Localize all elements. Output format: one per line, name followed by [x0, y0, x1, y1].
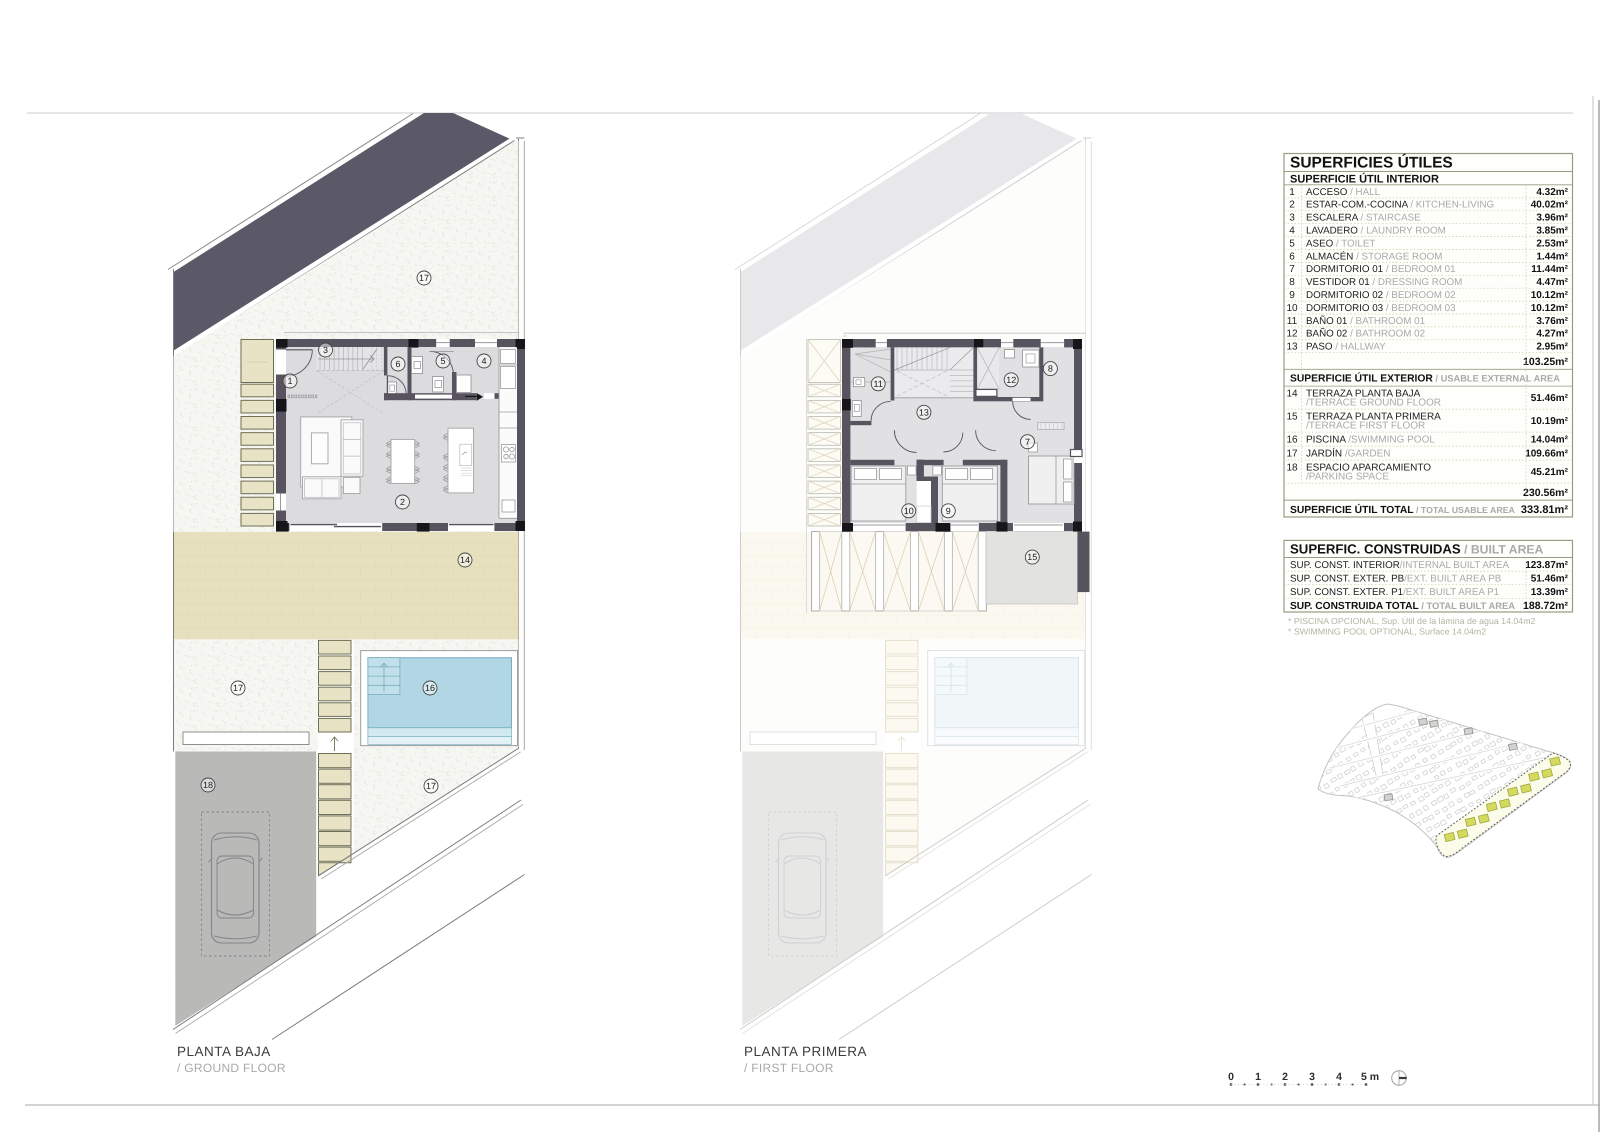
svg-text:5 m: 5 m [1361, 1071, 1379, 1083]
svg-text:2: 2 [400, 497, 405, 507]
svg-text:17: 17 [419, 273, 429, 283]
svg-text:1.44m²: 1.44m² [1536, 251, 1568, 262]
svg-text:51.46m²: 51.46m² [1531, 574, 1569, 585]
svg-text:17: 17 [233, 683, 243, 693]
svg-text:14: 14 [1286, 388, 1298, 399]
svg-text:15: 15 [1027, 552, 1037, 562]
svg-text:/TERRACE FIRST FLOOR: /TERRACE FIRST FLOOR [1306, 421, 1425, 432]
svg-text:ESTAR-COM.-COCINA / KITCHEN-LI: ESTAR-COM.-COCINA / KITCHEN-LIVING [1306, 200, 1494, 211]
svg-text:/ FIRST FLOOR: / FIRST FLOOR [744, 1061, 834, 1075]
svg-text:PLANTA BAJA: PLANTA BAJA [177, 1044, 271, 1059]
svg-text:11: 11 [1287, 316, 1298, 327]
svg-text:3.85m²: 3.85m² [1536, 226, 1568, 237]
svg-text:4: 4 [481, 356, 486, 366]
svg-text:SUP. CONSTRUIDA TOTAL / TOTAL: SUP. CONSTRUIDA TOTAL / TOTAL BUILT AREA [1290, 600, 1515, 612]
svg-text:14.04m²: 14.04m² [1531, 435, 1569, 446]
svg-text:10.12m²: 10.12m² [1531, 290, 1569, 301]
svg-text:ASEO / TOILET: ASEO / TOILET [1306, 238, 1375, 249]
svg-text:17: 17 [426, 781, 436, 791]
svg-text:BAÑO 02 / BATHROOM 02: BAÑO 02 / BATHROOM 02 [1306, 328, 1425, 340]
svg-text:ALMACÉN / STORAGE ROOM: ALMACÉN / STORAGE ROOM [1306, 250, 1442, 262]
svg-text:10: 10 [1286, 303, 1298, 314]
svg-text:109.66m²: 109.66m² [1525, 449, 1568, 460]
svg-text:18: 18 [203, 780, 213, 790]
svg-text:JARDÍN /GARDEN: JARDÍN /GARDEN [1306, 447, 1390, 459]
svg-text:* PISCINA OPCIONAL, Sup. Útil: * PISCINA OPCIONAL, Sup. Útil de la lámi… [1288, 616, 1536, 626]
svg-text:SUPERFICIE ÚTIL TOTAL / TOTAL: SUPERFICIE ÚTIL TOTAL / TOTAL USABLE ARE… [1290, 503, 1516, 516]
svg-text:LAVADERO / LAUNDRY ROOM: LAVADERO / LAUNDRY ROOM [1306, 226, 1446, 237]
svg-text:45.21m²: 45.21m² [1531, 467, 1569, 478]
svg-text:5: 5 [1289, 238, 1295, 249]
svg-text:SUPERFICIES ÚTILES: SUPERFICIES ÚTILES [1290, 154, 1453, 172]
svg-text:6: 6 [395, 359, 400, 369]
svg-text:2.95m²: 2.95m² [1536, 342, 1568, 353]
svg-text:13.39m²: 13.39m² [1531, 587, 1569, 598]
svg-text:11.44m²: 11.44m² [1531, 264, 1568, 275]
svg-text:333.81m²: 333.81m² [1521, 504, 1568, 516]
svg-text:7: 7 [1289, 264, 1295, 275]
svg-text:7: 7 [1025, 437, 1030, 447]
svg-text:DORMITORIO 01 / BEDROOM 01: DORMITORIO 01 / BEDROOM 01 [1306, 264, 1456, 275]
svg-text:10.19m²: 10.19m² [1531, 416, 1569, 427]
svg-text:PLANTA PRIMERA: PLANTA PRIMERA [744, 1044, 867, 1059]
svg-text:ACCESO / HALL: ACCESO / HALL [1306, 187, 1381, 198]
svg-text:3: 3 [1289, 213, 1295, 224]
svg-text:13: 13 [919, 407, 929, 417]
svg-text:SUPERFICIE ÚTIL EXTERIOR / USA: SUPERFICIE ÚTIL EXTERIOR / USABLE EXTERN… [1290, 372, 1560, 385]
svg-text:11: 11 [874, 379, 883, 389]
svg-text:5: 5 [440, 356, 445, 366]
svg-text:4.47m²: 4.47m² [1536, 277, 1568, 288]
svg-text:* SWIMMING POOL OPTIONAL, Surf: * SWIMMING POOL OPTIONAL, Surface 14.04m… [1288, 627, 1486, 637]
svg-text:DORMITORIO 02 / BEDROOM 02: DORMITORIO 02 / BEDROOM 02 [1306, 290, 1456, 301]
svg-text:3.96m²: 3.96m² [1536, 213, 1568, 224]
svg-text:SUPERFIC. CONSTRUIDAS / BUILT: SUPERFIC. CONSTRUIDAS / BUILT AREA [1290, 542, 1544, 557]
svg-text:8: 8 [1289, 277, 1295, 288]
svg-text:12: 12 [1286, 329, 1298, 340]
svg-text:103.25m²: 103.25m² [1523, 356, 1568, 368]
svg-text:1: 1 [287, 376, 292, 386]
svg-text:13: 13 [1286, 342, 1298, 353]
svg-text:SUP. CONST. EXTER. P1/EXT. BUI: SUP. CONST. EXTER. P1/EXT. BUILT AREA P1 [1290, 587, 1499, 598]
svg-text:/PARKING SPACE: /PARKING SPACE [1306, 472, 1389, 483]
svg-text:DORMITORIO 03 / BEDROOM 03: DORMITORIO 03 / BEDROOM 03 [1306, 303, 1456, 314]
svg-text:10.12m²: 10.12m² [1531, 303, 1569, 314]
svg-text:PISCINA /SWIMMING POOL: PISCINA /SWIMMING POOL [1306, 434, 1435, 445]
svg-text:4.27m²: 4.27m² [1536, 329, 1568, 340]
svg-text:PASO / HALLWAY: PASO / HALLWAY [1306, 342, 1386, 353]
svg-text:/ GROUND FLOOR: / GROUND FLOOR [177, 1061, 286, 1075]
svg-text:188.72m²: 188.72m² [1523, 600, 1568, 612]
svg-text:4.32m²: 4.32m² [1536, 187, 1568, 198]
svg-text:17: 17 [1286, 448, 1298, 459]
svg-text:9: 9 [946, 506, 951, 516]
svg-text:4: 4 [1336, 1071, 1342, 1083]
svg-text:SUP. CONST. INTERIOR/INTERNAL: SUP. CONST. INTERIOR/INTERNAL BUILT AREA [1290, 560, 1509, 571]
svg-text:10: 10 [904, 506, 914, 516]
svg-text:SUP. CONST. EXTER. PB/EXT. BUI: SUP. CONST. EXTER. PB/EXT. BUILT AREA PB [1290, 574, 1502, 585]
svg-text:BAÑO 01 / BATHROOM 01: BAÑO 01 / BATHROOM 01 [1306, 315, 1425, 327]
svg-text:/TERRACE GROUND FLOOR: /TERRACE GROUND FLOOR [1306, 398, 1441, 409]
svg-text:3.76m²: 3.76m² [1536, 316, 1568, 327]
svg-text:6: 6 [1289, 251, 1295, 262]
svg-text:VESTIDOR 01 / DRESSING ROOM: VESTIDOR 01 / DRESSING ROOM [1306, 277, 1462, 288]
svg-text:ESCALERA / STAIRCASE: ESCALERA / STAIRCASE [1306, 213, 1421, 224]
svg-text:1: 1 [1255, 1071, 1261, 1083]
svg-text:3: 3 [1309, 1071, 1315, 1083]
svg-text:12: 12 [1006, 375, 1016, 385]
svg-text:14: 14 [460, 555, 470, 565]
svg-text:230.56m²: 230.56m² [1523, 487, 1568, 499]
svg-text:SUPERFICIE ÚTIL INTERIOR: SUPERFICIE ÚTIL INTERIOR [1290, 172, 1439, 185]
svg-text:2: 2 [1282, 1071, 1288, 1083]
svg-text:40.02m²: 40.02m² [1531, 200, 1569, 211]
svg-text:8: 8 [1048, 364, 1053, 374]
svg-text:18: 18 [1286, 462, 1298, 473]
svg-text:4: 4 [1289, 226, 1295, 237]
svg-text:2: 2 [1289, 200, 1295, 211]
svg-text:3: 3 [323, 345, 328, 355]
svg-text:15: 15 [1286, 411, 1298, 422]
svg-text:1: 1 [1289, 187, 1295, 198]
svg-text:51.46m²: 51.46m² [1531, 393, 1569, 404]
svg-text:16: 16 [1286, 434, 1298, 445]
svg-text:16: 16 [425, 683, 435, 693]
svg-text:123.87m²: 123.87m² [1525, 560, 1568, 571]
svg-text:9: 9 [1289, 290, 1295, 301]
svg-text:0: 0 [1228, 1071, 1234, 1083]
svg-text:2.53m²: 2.53m² [1536, 238, 1568, 249]
